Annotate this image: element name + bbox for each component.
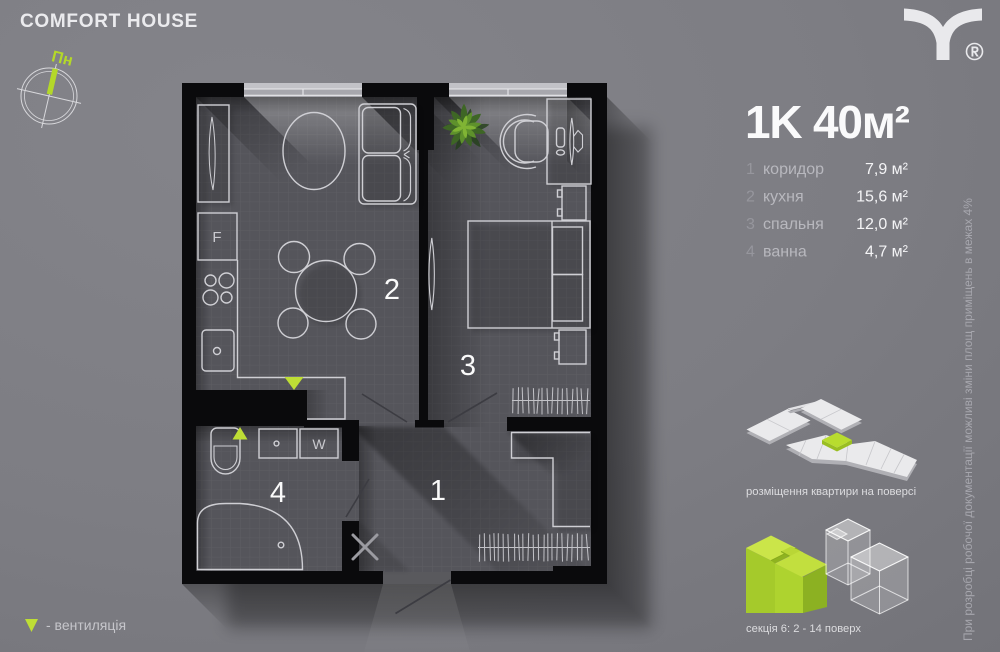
svg-text:2: 2 bbox=[746, 189, 755, 206]
svg-text:кухня: кухня bbox=[763, 189, 804, 206]
svg-text:4: 4 bbox=[746, 244, 755, 261]
svg-text:ванна: ванна bbox=[763, 244, 807, 261]
svg-text:- вентиляція: - вентиляція bbox=[46, 617, 126, 633]
svg-text:1: 1 bbox=[746, 161, 755, 178]
svg-text:COMFORT HOUSE: COMFORT HOUSE bbox=[20, 11, 198, 32]
svg-text:W: W bbox=[312, 436, 326, 452]
svg-text:2: 2 bbox=[384, 274, 400, 306]
svg-text:12,0 м²: 12,0 м² bbox=[856, 216, 909, 233]
svg-text:3: 3 bbox=[460, 350, 476, 382]
svg-text:коридор: коридор bbox=[763, 161, 824, 178]
svg-text:секція 6: 2 - 14 поверх: секція 6: 2 - 14 поверх bbox=[746, 623, 861, 635]
svg-text:розміщення квартири на поверсі: розміщення квартири на поверсі bbox=[746, 486, 916, 498]
svg-text:4,7 м²: 4,7 м² bbox=[865, 244, 909, 261]
svg-text:спальня: спальня bbox=[763, 216, 824, 233]
svg-text:F: F bbox=[212, 229, 221, 246]
svg-text:15,6 м²: 15,6 м² bbox=[856, 189, 909, 206]
svg-text:1K 40м²: 1K 40м² bbox=[745, 96, 910, 148]
svg-text:4: 4 bbox=[270, 477, 286, 509]
svg-text:7,9 м²: 7,9 м² bbox=[865, 161, 909, 178]
svg-text:При розробці робочої документа: При розробці робочої документації можлив… bbox=[961, 198, 975, 641]
svg-text:1: 1 bbox=[430, 475, 446, 507]
svg-text:3: 3 bbox=[746, 216, 755, 233]
